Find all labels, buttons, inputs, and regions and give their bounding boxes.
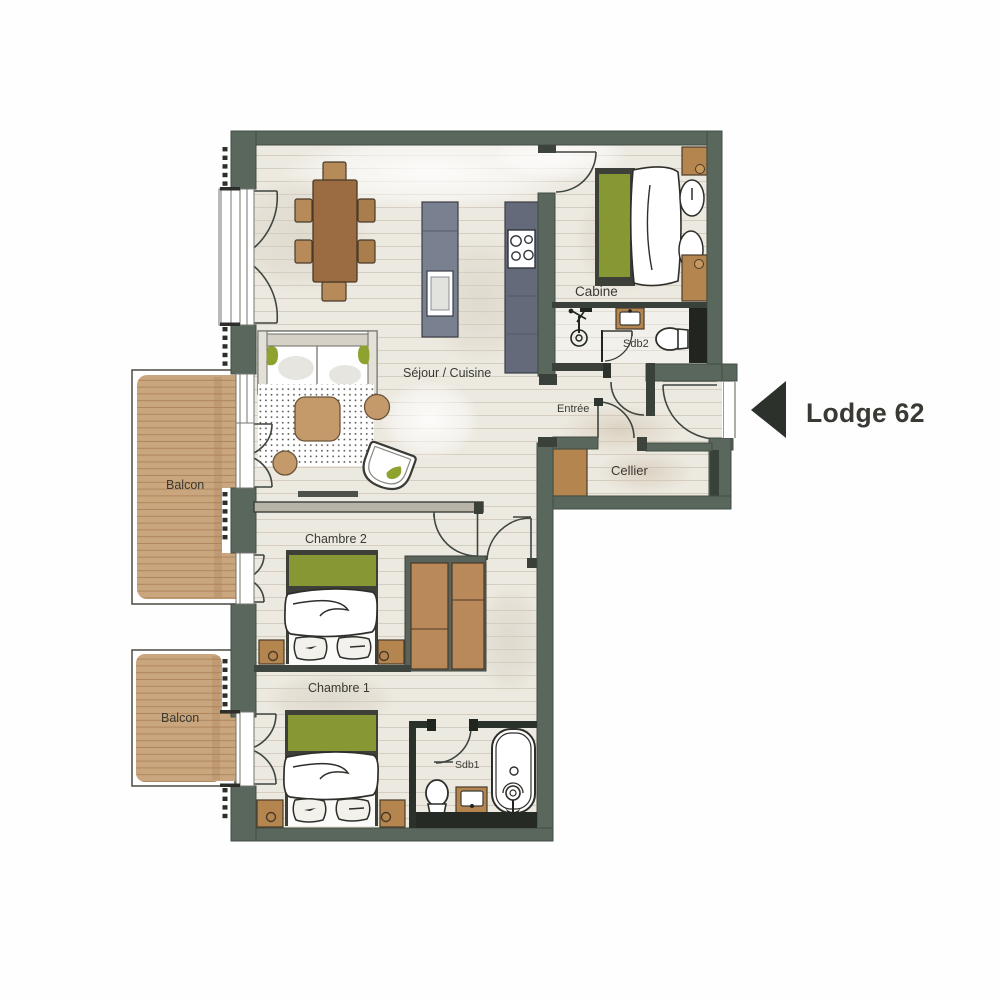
svg-text:Entrée: Entrée bbox=[557, 403, 589, 415]
svg-text:Lodge 62: Lodge 62 bbox=[806, 398, 925, 428]
svg-text:Séjour / Cuisine: Séjour / Cuisine bbox=[403, 366, 491, 380]
svg-text:Balcon: Balcon bbox=[161, 711, 199, 725]
svg-text:Sdb2: Sdb2 bbox=[623, 338, 649, 350]
svg-text:Cellier: Cellier bbox=[611, 463, 649, 478]
svg-text:Cabine: Cabine bbox=[575, 284, 618, 299]
svg-text:Balcon: Balcon bbox=[166, 478, 204, 492]
svg-text:Chambre 2: Chambre 2 bbox=[305, 532, 367, 546]
svg-text:Sdb1: Sdb1 bbox=[455, 759, 480, 771]
svg-text:Chambre 1: Chambre 1 bbox=[308, 681, 370, 695]
